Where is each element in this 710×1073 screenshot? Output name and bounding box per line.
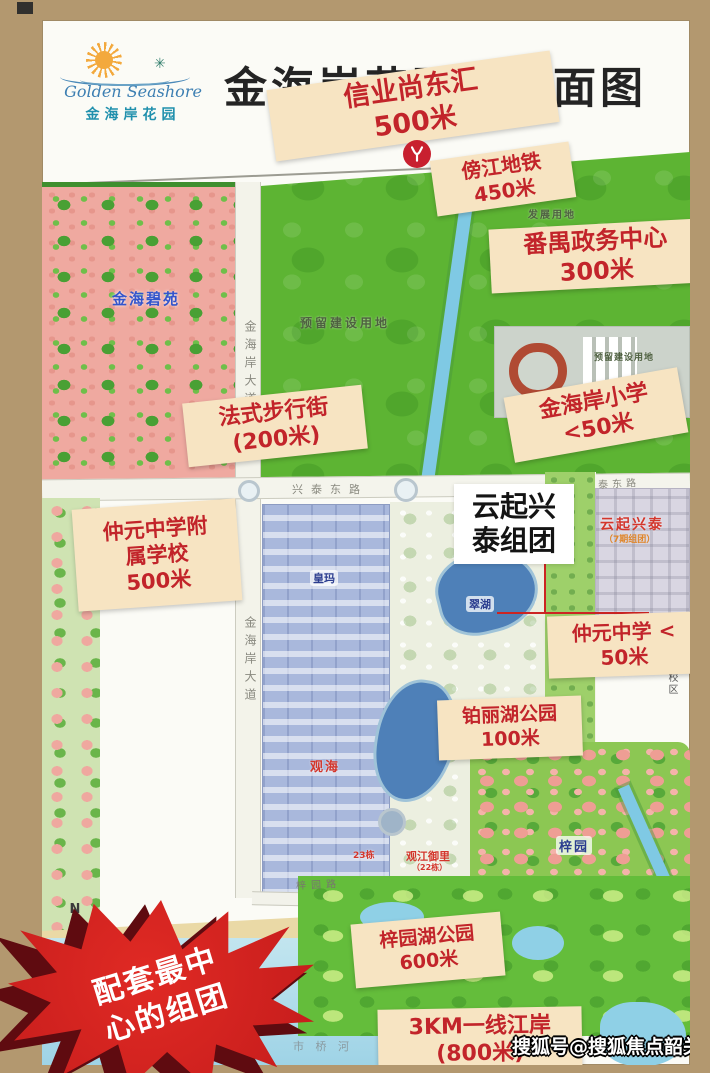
community-name: 金海碧苑 [112,288,180,309]
roundabout [378,808,406,836]
callout-connector-line [544,563,546,613]
road-name: 梓园路 [296,875,342,892]
block-label: 皇玛 [310,570,338,586]
frame-corner-mark [17,2,33,14]
jinhaian-avenue-road [235,182,261,898]
roundabout [394,478,418,502]
logo-chinese-name: 金海岸花园 [58,104,208,124]
yunqi-xingtai-plot [595,488,690,628]
promo-starburst: 配套最中 心的组团 [8,900,314,1073]
lake-label: 翠湖 [466,596,494,612]
palm-tree-icon: ✳ [154,56,166,72]
road-name: 兴泰东路 [292,481,368,497]
guanhai-label: 观海 [310,756,340,775]
note-affiliated-school: 仲元中学附 属学校 500米 [72,498,243,611]
road-name: 金海岸大道 [242,616,259,706]
land-label: 预留建设用地 [594,350,654,363]
yunqi-xingtai-sublabel: （7期组团） [604,532,655,545]
note-zhongyuan-school: 仲元中学 < 50米 [547,611,690,678]
park-pond [512,926,564,960]
metro-icon [403,140,431,168]
note-gov-center: 番禺政务中心 300米 [488,218,690,293]
land-label: 预留建设用地 [300,314,390,331]
cluster-callout: 云起兴 泰组团 [454,484,574,564]
note-bolihu-park: 铂丽湖公园 100米 [437,696,583,761]
golden-seashore-logo: ✳ Golden Seashore 金海岸花园 [58,42,208,128]
building-23-label: 23栋 [353,848,375,861]
watermark: 搜狐号@搜狐焦点韶关站 [512,1032,690,1059]
logo-english-name: Golden Seashore [58,82,208,101]
guanjiang-sublabel: （22栋） [412,862,447,873]
roundabout [238,480,260,502]
ziyuan-label: 梓园 [556,836,592,855]
future-phase-blocks [262,504,390,896]
note-ziyuanhu-park: 梓园湖公园 600米 [350,912,505,989]
land-label: 发展用地 [528,206,576,221]
road-name: 泰东路 [598,474,641,491]
yunqi-xingtai-label: 云起兴泰 [600,514,664,534]
poster: ✳ Golden Seashore 金海岸花园 金海岸花园总平面图 [0,0,710,1073]
